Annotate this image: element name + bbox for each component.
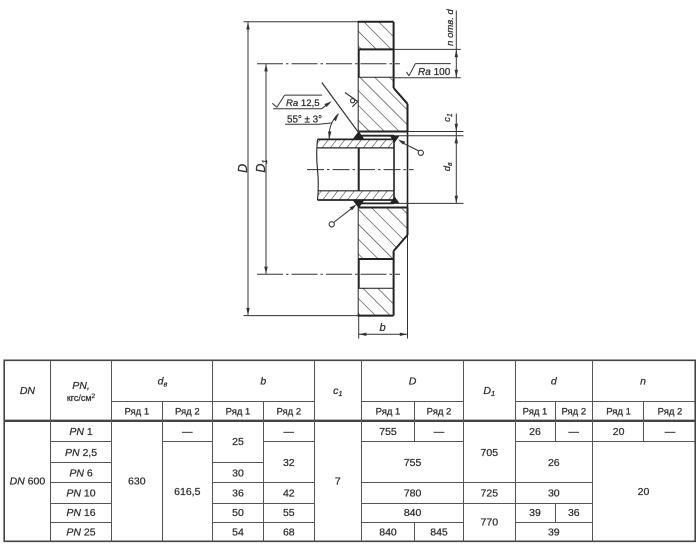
svg-text:26: 26: [548, 457, 560, 469]
svg-text:630: 630: [128, 476, 146, 488]
svg-text:d: d: [551, 376, 558, 388]
svg-text:55: 55: [283, 507, 295, 519]
svg-text:D1: D1: [483, 385, 495, 398]
svg-text:840: 840: [404, 507, 422, 519]
svg-text:42: 42: [283, 488, 295, 500]
svg-text:20: 20: [638, 486, 650, 498]
svg-text:30: 30: [232, 468, 244, 480]
svg-text:616,5: 616,5: [174, 486, 200, 498]
svg-text:dв: dв: [158, 376, 168, 389]
svg-text:780: 780: [404, 488, 422, 500]
svg-text:Ряд 2: Ряд 2: [175, 407, 200, 418]
svg-text:PN,: PN,: [72, 380, 90, 392]
svg-text:PN 2,5: PN 2,5: [65, 447, 97, 459]
svg-text:PN 16: PN 16: [66, 507, 95, 519]
svg-text:30: 30: [548, 488, 560, 500]
svg-text:PN 10: PN 10: [66, 488, 95, 500]
svg-text:25: 25: [232, 436, 244, 448]
svg-text:n: n: [640, 376, 646, 388]
svg-text:—: —: [665, 426, 676, 438]
svg-text:DN 600: DN 600: [10, 476, 46, 488]
svg-text:7: 7: [335, 476, 341, 488]
svg-text:PN 25: PN 25: [66, 527, 95, 539]
svg-text:68: 68: [283, 527, 295, 539]
svg-text:Ra 12,5: Ra 12,5: [286, 98, 320, 109]
svg-text:Ряд 1: Ряд 1: [523, 407, 548, 418]
svg-text:26: 26: [529, 426, 541, 438]
svg-text:—: —: [434, 426, 445, 438]
svg-text:39: 39: [529, 507, 541, 519]
svg-text:D: D: [409, 376, 417, 388]
svg-text:705: 705: [481, 447, 499, 459]
svg-text:Ряд 2: Ряд 2: [276, 407, 301, 418]
svg-text:20: 20: [613, 426, 625, 438]
svg-text:770: 770: [481, 517, 499, 529]
svg-text:Ряд 1: Ряд 1: [226, 407, 251, 418]
svg-text:c1: c1: [442, 113, 454, 122]
svg-text:—: —: [182, 426, 193, 438]
svg-text:PN 6: PN 6: [69, 468, 93, 480]
svg-text:39: 39: [548, 527, 560, 539]
svg-text:D1: D1: [254, 159, 269, 172]
svg-text:dв: dв: [442, 162, 454, 171]
svg-text:36: 36: [568, 507, 580, 519]
svg-text:50: 50: [232, 507, 244, 519]
svg-text:—: —: [569, 426, 580, 438]
svg-text:Ряд 2: Ряд 2: [561, 407, 586, 418]
svg-text:кгс/см2: кгс/см2: [67, 393, 96, 403]
svg-text:b: b: [379, 322, 385, 334]
svg-text:Ra 100: Ra 100: [418, 67, 451, 78]
svg-text:840: 840: [379, 527, 397, 539]
svg-text:b: b: [260, 376, 266, 388]
svg-text:Ряд 1: Ряд 1: [606, 407, 631, 418]
svg-text:845: 845: [430, 527, 448, 539]
svg-text:c1: c1: [333, 385, 342, 398]
svg-text:Ряд 2: Ряд 2: [427, 407, 452, 418]
svg-text:D: D: [236, 164, 250, 173]
svg-text:n отв. d: n отв. d: [445, 8, 456, 45]
svg-text:755: 755: [404, 457, 422, 469]
svg-text:—: —: [284, 426, 295, 438]
svg-text:DN: DN: [20, 385, 36, 397]
svg-text:Ряд 2: Ряд 2: [658, 407, 683, 418]
svg-text:32: 32: [283, 457, 295, 469]
svg-text:Ряд 1: Ряд 1: [124, 407, 149, 418]
svg-text:Ряд 1: Ряд 1: [376, 407, 401, 418]
svg-text:PN 1: PN 1: [69, 426, 93, 438]
svg-text:755: 755: [379, 426, 397, 438]
svg-text:36: 36: [232, 488, 244, 500]
svg-text:54: 54: [232, 527, 244, 539]
svg-text:725: 725: [481, 488, 499, 500]
